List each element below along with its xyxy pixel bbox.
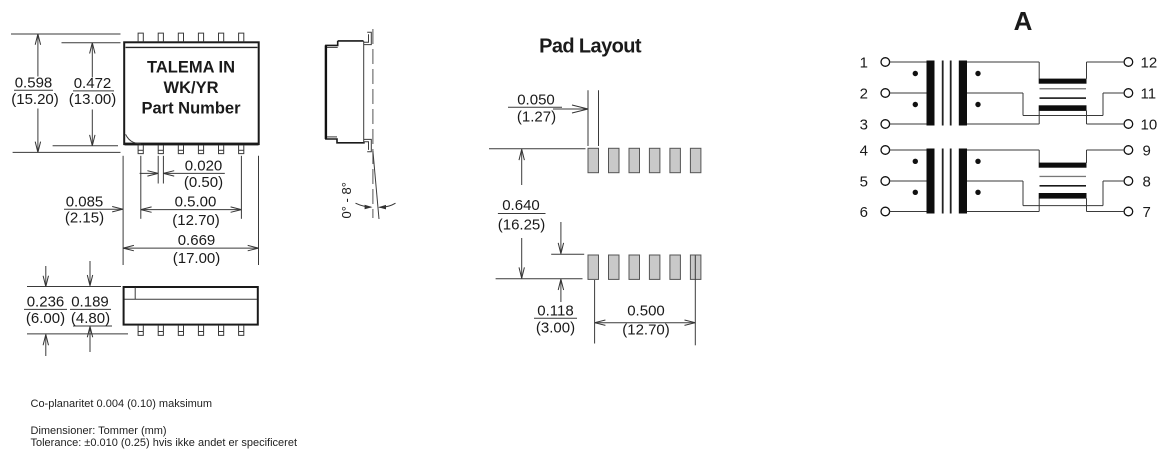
svg-text:0.669: 0.669 bbox=[178, 232, 216, 249]
svg-text:6: 6 bbox=[860, 204, 868, 221]
svg-text:0.118: 0.118 bbox=[537, 302, 573, 319]
svg-text:0.472: 0.472 bbox=[74, 75, 112, 92]
svg-text:2: 2 bbox=[860, 85, 868, 102]
svg-text:12: 12 bbox=[1141, 54, 1158, 71]
svg-text:(12.70): (12.70) bbox=[172, 212, 220, 229]
svg-text:0.020: 0.020 bbox=[185, 157, 223, 174]
svg-text:Part Number: Part Number bbox=[141, 100, 241, 118]
svg-text:(15.20): (15.20) bbox=[11, 91, 59, 108]
svg-text:(12.70): (12.70) bbox=[622, 322, 670, 339]
svg-text:3: 3 bbox=[860, 116, 868, 133]
svg-text:WK/YR: WK/YR bbox=[164, 79, 219, 97]
svg-text:0.050: 0.050 bbox=[517, 91, 555, 108]
svg-text:TALEMA IN: TALEMA IN bbox=[147, 59, 235, 77]
svg-text:(13.00): (13.00) bbox=[69, 91, 117, 108]
svg-text:10: 10 bbox=[1141, 116, 1158, 133]
svg-text:(2.15): (2.15) bbox=[65, 210, 104, 227]
svg-text:Pad Layout: Pad Layout bbox=[539, 36, 642, 58]
svg-text:(17.00): (17.00) bbox=[173, 250, 221, 267]
svg-text:0° - 8°: 0° - 8° bbox=[339, 182, 354, 218]
svg-text:0.640: 0.640 bbox=[502, 197, 540, 214]
svg-text:4: 4 bbox=[860, 142, 868, 159]
svg-text:7: 7 bbox=[1143, 204, 1151, 221]
svg-text:Tolerance: ±0.010 (0.25) hvis: Tolerance: ±0.010 (0.25) hvis ikke andet… bbox=[31, 437, 298, 449]
svg-text:0.500: 0.500 bbox=[627, 303, 665, 320]
svg-text:0.189: 0.189 bbox=[71, 294, 109, 311]
svg-text:Dimensioner: Tommer (mm): Dimensioner: Tommer (mm) bbox=[31, 425, 167, 437]
svg-text:(6.00): (6.00) bbox=[26, 310, 65, 327]
svg-text:Co-planaritet 0.004 (0.10) mak: Co-planaritet 0.004 (0.10) maksimum bbox=[31, 398, 213, 410]
svg-text:9: 9 bbox=[1143, 142, 1151, 159]
svg-text:(16.25): (16.25) bbox=[498, 216, 546, 233]
svg-text:11: 11 bbox=[1141, 85, 1157, 102]
svg-text:(3.00): (3.00) bbox=[536, 319, 575, 336]
svg-text:(4.80): (4.80) bbox=[71, 310, 110, 327]
svg-text:0.598: 0.598 bbox=[15, 75, 53, 92]
svg-text:(0.50): (0.50) bbox=[184, 174, 223, 191]
svg-text:5: 5 bbox=[860, 173, 868, 190]
svg-text:1: 1 bbox=[860, 54, 868, 71]
svg-text:0.085: 0.085 bbox=[66, 193, 104, 210]
svg-text:0.5.00: 0.5.00 bbox=[175, 193, 217, 210]
svg-text:A: A bbox=[1014, 6, 1033, 36]
svg-text:0.236: 0.236 bbox=[27, 294, 65, 311]
svg-text:(1.27): (1.27) bbox=[517, 108, 556, 125]
svg-text:8: 8 bbox=[1143, 173, 1151, 190]
